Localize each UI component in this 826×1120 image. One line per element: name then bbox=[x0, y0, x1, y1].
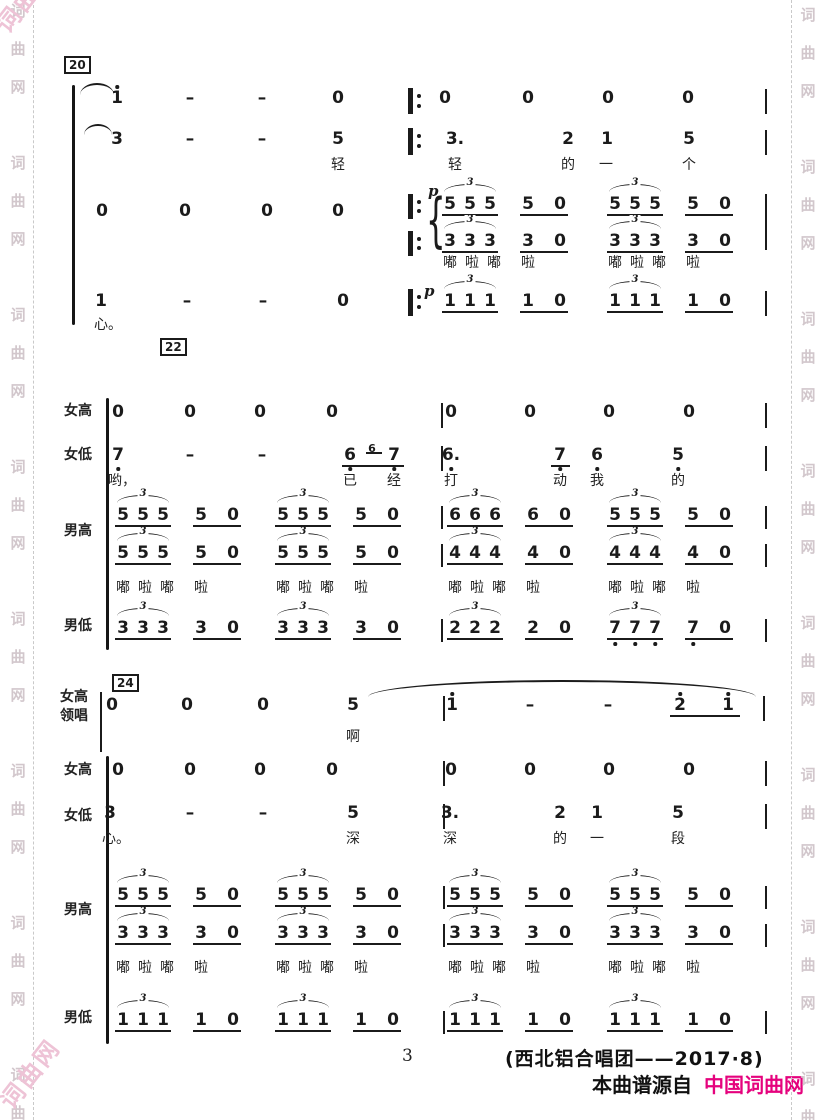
beam-line bbox=[685, 1030, 733, 1032]
scat-lyric: 啦 bbox=[686, 256, 700, 270]
beam-line bbox=[607, 251, 663, 253]
note: 5 bbox=[629, 196, 641, 213]
watermark-char: 词 bbox=[10, 308, 25, 323]
triplet-number: 3 bbox=[298, 994, 309, 1004]
system-bracket bbox=[72, 85, 75, 325]
watermark-char: 词 bbox=[10, 764, 25, 779]
rest-note: 0 bbox=[106, 697, 118, 714]
beam-line bbox=[115, 943, 171, 945]
note: 5 bbox=[332, 131, 344, 148]
note: 1 bbox=[446, 697, 458, 714]
note: 5 bbox=[489, 887, 501, 904]
lyric: 的 bbox=[553, 832, 567, 846]
triplet-bracket: 3 bbox=[277, 533, 329, 541]
octave-dot-below bbox=[633, 642, 637, 646]
beam-line bbox=[525, 1030, 573, 1032]
note: 1 bbox=[527, 1012, 539, 1029]
triplet-bracket: 3 bbox=[117, 913, 169, 921]
system-bracket bbox=[106, 756, 109, 1044]
note: 5 bbox=[195, 887, 207, 904]
note: 3 bbox=[687, 925, 699, 942]
watermark-char: 网 bbox=[10, 232, 25, 247]
barline bbox=[765, 130, 767, 155]
note: 5 bbox=[672, 447, 684, 464]
scat-lyric: 啦 bbox=[686, 581, 700, 595]
lyric: 段 bbox=[671, 832, 685, 846]
rest-note: 0 bbox=[387, 925, 399, 942]
rest-note: 0 bbox=[227, 887, 239, 904]
note: 1 bbox=[484, 293, 496, 310]
rest-note: 0 bbox=[227, 925, 239, 942]
note: – bbox=[259, 293, 268, 310]
triplet-number: 3 bbox=[470, 489, 481, 499]
note: 3 bbox=[277, 925, 289, 942]
triplet-number: 3 bbox=[138, 869, 149, 879]
watermark-char: 词 bbox=[800, 920, 815, 935]
rest-note: 0 bbox=[96, 203, 108, 220]
dynamic-marking: p bbox=[428, 184, 439, 199]
watermark-char: 网 bbox=[800, 996, 815, 1011]
note: 5 bbox=[469, 887, 481, 904]
note: – bbox=[186, 131, 195, 148]
octave-dot-below bbox=[613, 642, 617, 646]
watermark-char: 曲 bbox=[800, 198, 815, 213]
beam-line bbox=[193, 638, 241, 640]
rest-note: 0 bbox=[719, 545, 731, 562]
note: 5 bbox=[297, 545, 309, 562]
note: 5 bbox=[687, 507, 699, 524]
triplet-bracket: 3 bbox=[609, 533, 661, 541]
triplet-bracket: 3 bbox=[117, 608, 169, 616]
scat-lyric: 嘟 bbox=[276, 961, 290, 975]
lyric: 已 bbox=[343, 474, 357, 488]
rest-note: 0 bbox=[179, 203, 191, 220]
lyric: 心。 bbox=[94, 318, 122, 332]
rest-note: 0 bbox=[445, 404, 457, 421]
triplet-number: 3 bbox=[630, 489, 641, 499]
watermark-char: 曲 bbox=[800, 502, 815, 517]
beam-line bbox=[275, 1030, 331, 1032]
note: 5 bbox=[277, 545, 289, 562]
source-prefix: 本曲谱源自 bbox=[592, 1069, 692, 1098]
beam-line bbox=[353, 905, 401, 907]
triplet-number: 3 bbox=[138, 602, 149, 612]
voice-label: 男高 bbox=[64, 524, 92, 538]
note: 5 bbox=[195, 545, 207, 562]
watermark-char: 网 bbox=[10, 992, 25, 1007]
note: 1 bbox=[609, 293, 621, 310]
triplet-number: 3 bbox=[470, 527, 481, 537]
scat-lyric: 啦 bbox=[526, 961, 540, 975]
barline bbox=[765, 1011, 767, 1034]
note: 3 bbox=[687, 233, 699, 250]
note: 5 bbox=[137, 507, 149, 524]
rest-note: 0 bbox=[682, 90, 694, 107]
triplet-bracket: 3 bbox=[449, 875, 501, 883]
watermark-char: 词 bbox=[10, 460, 25, 475]
note: 3 bbox=[464, 233, 476, 250]
beam-line bbox=[193, 905, 241, 907]
lyric: 一 bbox=[590, 832, 604, 846]
lyric: 心。 bbox=[102, 832, 130, 846]
rest-note: 0 bbox=[337, 293, 349, 310]
note: 3 bbox=[522, 233, 534, 250]
beam-line bbox=[551, 465, 570, 467]
note: 1 bbox=[649, 1012, 661, 1029]
rest-note: 0 bbox=[719, 1012, 731, 1029]
note: 5 bbox=[609, 507, 621, 524]
note: – bbox=[186, 447, 195, 464]
rest-note: 0 bbox=[227, 1012, 239, 1029]
note: 3 bbox=[195, 925, 207, 942]
triplet-number: 3 bbox=[298, 907, 309, 917]
rest-note: 0 bbox=[719, 620, 731, 637]
scat-lyric: 啦 bbox=[138, 581, 152, 595]
note: 2 bbox=[527, 620, 539, 637]
note: 7 bbox=[388, 447, 400, 464]
beam-line bbox=[442, 251, 498, 253]
barline bbox=[443, 886, 445, 909]
note: 3 bbox=[355, 925, 367, 942]
voice-label: 男低 bbox=[64, 1011, 92, 1025]
note: 4 bbox=[449, 545, 461, 562]
beam-line bbox=[525, 905, 573, 907]
watermark-char: 网 bbox=[10, 384, 25, 399]
watermark-char: 曲 bbox=[10, 346, 25, 361]
scat-lyric: 啦 bbox=[298, 581, 312, 595]
triplet-number: 3 bbox=[630, 275, 641, 285]
note: 3 bbox=[629, 233, 641, 250]
note: 1 bbox=[469, 1012, 481, 1029]
scat-lyric: 嘟 bbox=[492, 961, 506, 975]
note: 3 bbox=[117, 925, 129, 942]
note: 6 bbox=[489, 507, 501, 524]
watermark-char: 网 bbox=[800, 844, 815, 859]
barline bbox=[443, 1011, 445, 1034]
octave-dot-above bbox=[115, 85, 119, 89]
watermark-char: 网 bbox=[10, 536, 25, 551]
octave-dot-below bbox=[676, 467, 680, 471]
watermark-char: 曲 bbox=[10, 954, 25, 969]
beam-line bbox=[366, 452, 382, 454]
note: 5 bbox=[649, 887, 661, 904]
octave-dot-below bbox=[392, 467, 396, 471]
beam-line bbox=[685, 311, 733, 313]
barline bbox=[443, 696, 445, 721]
rest-note: 0 bbox=[559, 887, 571, 904]
watermark-char: 词 bbox=[800, 160, 815, 175]
grand-staff-brace: { bbox=[426, 192, 446, 251]
note: 1 bbox=[489, 1012, 501, 1029]
note: 1 bbox=[449, 1012, 461, 1029]
triplet-bracket: 3 bbox=[117, 1000, 169, 1008]
repeat-sign bbox=[408, 88, 422, 114]
voice-label: 女高 bbox=[60, 690, 88, 704]
note: 5 bbox=[687, 196, 699, 213]
rest-note: 0 bbox=[683, 762, 695, 779]
note: – bbox=[258, 447, 267, 464]
note: 3 bbox=[444, 233, 456, 250]
rest-note: 0 bbox=[387, 545, 399, 562]
rest-note: 0 bbox=[602, 90, 614, 107]
note: 5 bbox=[157, 507, 169, 524]
note: 5 bbox=[484, 196, 496, 213]
watermark-char: 曲 bbox=[800, 806, 815, 821]
note: 3 bbox=[355, 620, 367, 637]
repeat-sign bbox=[408, 128, 422, 155]
triplet-bracket: 3 bbox=[449, 533, 501, 541]
watermark-char: 网 bbox=[10, 80, 25, 95]
lyric: 轻 bbox=[448, 158, 462, 172]
barline bbox=[765, 761, 767, 786]
slur-arc bbox=[368, 680, 756, 697]
lyric: 啊 bbox=[346, 730, 360, 744]
triplet-number: 3 bbox=[630, 869, 641, 879]
note: 3 bbox=[157, 925, 169, 942]
beam-line bbox=[685, 943, 733, 945]
watermark-char: 词 bbox=[800, 8, 815, 23]
note: 5 bbox=[157, 545, 169, 562]
note: 1 bbox=[137, 1012, 149, 1029]
triplet-bracket: 3 bbox=[444, 184, 496, 192]
note: 3 bbox=[104, 805, 116, 822]
watermark-char: 网 bbox=[800, 84, 815, 99]
repeat-dot bbox=[417, 144, 421, 148]
note: 3 bbox=[629, 925, 641, 942]
page-number: 3 bbox=[402, 1046, 413, 1066]
repeat-dot bbox=[417, 295, 421, 299]
note: 4 bbox=[609, 545, 621, 562]
note: 5 bbox=[609, 196, 621, 213]
scat-lyric: 嘟 bbox=[116, 961, 130, 975]
rest-note: 0 bbox=[227, 507, 239, 524]
note: 1 bbox=[157, 1012, 169, 1029]
beam-line bbox=[115, 638, 171, 640]
note: 5 bbox=[527, 887, 539, 904]
triplet-number: 3 bbox=[298, 527, 309, 537]
rest-note: 0 bbox=[387, 620, 399, 637]
note: 5 bbox=[117, 887, 129, 904]
system-bracket bbox=[106, 398, 109, 650]
watermark-char: 网 bbox=[800, 540, 815, 555]
rest-note: 0 bbox=[254, 762, 266, 779]
triplet-bracket: 3 bbox=[609, 875, 661, 883]
rest-note: 0 bbox=[559, 545, 571, 562]
watermark-char: 网 bbox=[10, 688, 25, 703]
scat-lyric: 嘟 bbox=[160, 581, 174, 595]
triplet-number: 3 bbox=[138, 527, 149, 537]
beam-line bbox=[193, 1030, 241, 1032]
note: 3 bbox=[469, 925, 481, 942]
note: – bbox=[183, 293, 192, 310]
note: 5 bbox=[649, 507, 661, 524]
note: 1 bbox=[601, 131, 613, 148]
note: 1 bbox=[317, 1012, 329, 1029]
triplet-number: 3 bbox=[630, 907, 641, 917]
lyric: 动 bbox=[553, 474, 567, 488]
watermark-dashed-line bbox=[33, 0, 34, 1120]
scat-lyric: 啦 bbox=[521, 256, 535, 270]
beam-line bbox=[353, 943, 401, 945]
note: 1 bbox=[95, 293, 107, 310]
note: 5 bbox=[317, 545, 329, 562]
octave-dot-below bbox=[653, 642, 657, 646]
beam-line bbox=[607, 638, 663, 640]
note: 5 bbox=[347, 805, 359, 822]
repeat-sign bbox=[408, 194, 422, 219]
lyric: 我 bbox=[590, 474, 604, 488]
triplet-number: 3 bbox=[465, 215, 476, 225]
scat-lyric: 嘟 bbox=[116, 581, 130, 595]
note: 1 bbox=[464, 293, 476, 310]
note: 1 bbox=[297, 1012, 309, 1029]
barline bbox=[443, 924, 445, 947]
note: 5 bbox=[522, 196, 534, 213]
note: 3. bbox=[441, 805, 459, 822]
barline bbox=[765, 403, 767, 428]
lyric: 打 bbox=[444, 474, 458, 488]
note: 5 bbox=[687, 887, 699, 904]
scat-lyric: 嘟 bbox=[448, 961, 462, 975]
triplet-bracket: 3 bbox=[444, 281, 496, 289]
note: 5 bbox=[444, 196, 456, 213]
rest-note: 0 bbox=[387, 507, 399, 524]
scat-lyric: 嘟 bbox=[652, 961, 666, 975]
note: 7 bbox=[554, 447, 566, 464]
barline bbox=[765, 619, 767, 642]
note: 5 bbox=[629, 507, 641, 524]
scat-lyric: 啦 bbox=[194, 961, 208, 975]
barline bbox=[765, 446, 767, 471]
triplet-bracket: 3 bbox=[117, 533, 169, 541]
beam-line bbox=[685, 214, 733, 216]
note: 5 bbox=[355, 887, 367, 904]
note: 5 bbox=[347, 697, 359, 714]
scat-lyric: 嘟 bbox=[608, 256, 622, 270]
triplet-bracket: 3 bbox=[449, 495, 501, 503]
voice-label: 女低 bbox=[64, 448, 92, 462]
rest-note: 0 bbox=[181, 697, 193, 714]
scat-lyric: 嘟 bbox=[448, 581, 462, 595]
repeat-dot bbox=[417, 94, 421, 98]
scat-lyric: 啦 bbox=[630, 256, 644, 270]
watermark-char: 曲 bbox=[800, 350, 815, 365]
triplet-number: 3 bbox=[630, 602, 641, 612]
beam-line bbox=[115, 563, 171, 565]
beam-line bbox=[353, 525, 401, 527]
octave-dot-below bbox=[595, 467, 599, 471]
note: 1 bbox=[591, 805, 603, 822]
watermark-char: 词 bbox=[800, 1072, 815, 1087]
triplet-bracket: 3 bbox=[444, 221, 496, 229]
triplet-number: 3 bbox=[630, 215, 641, 225]
note: 5 bbox=[355, 507, 367, 524]
note: 5 bbox=[683, 131, 695, 148]
note: 3 bbox=[111, 131, 123, 148]
note: 3 bbox=[137, 925, 149, 942]
lyric: 深 bbox=[443, 832, 457, 846]
triplet-number: 3 bbox=[298, 869, 309, 879]
beam-line bbox=[353, 563, 401, 565]
rest-note: 0 bbox=[554, 196, 566, 213]
note: 1 bbox=[444, 293, 456, 310]
watermark-char: 词 bbox=[800, 768, 815, 783]
triplet-bracket: 3 bbox=[277, 875, 329, 883]
rest-note: 0 bbox=[261, 203, 273, 220]
lyric: 经 bbox=[387, 474, 401, 488]
note: 5 bbox=[277, 887, 289, 904]
triplet-bracket: 3 bbox=[449, 913, 501, 921]
scat-lyric: 嘟 bbox=[652, 581, 666, 595]
barline bbox=[765, 89, 767, 114]
note: 1 bbox=[195, 1012, 207, 1029]
note: 3 bbox=[117, 620, 129, 637]
scat-lyric: 嘟 bbox=[320, 961, 334, 975]
repeat-dot bbox=[417, 237, 421, 241]
triplet-bracket: 3 bbox=[277, 608, 329, 616]
triplet-bracket: 3 bbox=[609, 184, 661, 192]
beam-line bbox=[525, 525, 573, 527]
repeat-dot bbox=[417, 134, 421, 138]
rest-note: 0 bbox=[184, 762, 196, 779]
note: 7 bbox=[629, 620, 641, 637]
beam-line bbox=[525, 638, 573, 640]
note: 2 bbox=[489, 620, 501, 637]
note: 1 bbox=[522, 293, 534, 310]
repeat-dot bbox=[417, 209, 421, 213]
rest-note: 0 bbox=[387, 1012, 399, 1029]
voice-label: 男高 bbox=[64, 903, 92, 917]
triplet-bracket: 3 bbox=[117, 495, 169, 503]
note: 1 bbox=[687, 1012, 699, 1029]
beam-line bbox=[607, 943, 663, 945]
measure-number-box: 22 bbox=[160, 338, 187, 356]
watermark-char: 词 bbox=[800, 616, 815, 631]
octave-dot-below bbox=[116, 467, 120, 471]
rest-note: 0 bbox=[719, 925, 731, 942]
lyric: 一 bbox=[599, 158, 613, 172]
beam-line bbox=[193, 525, 241, 527]
note: – bbox=[259, 805, 268, 822]
note: 3 bbox=[195, 620, 207, 637]
rest-note: 0 bbox=[254, 404, 266, 421]
rest-note: 0 bbox=[719, 233, 731, 250]
note: 5 bbox=[464, 196, 476, 213]
rest-note: 0 bbox=[332, 90, 344, 107]
source-site-link[interactable]: 中国词曲网 bbox=[704, 1069, 804, 1098]
barline bbox=[765, 924, 767, 947]
triplet-number: 3 bbox=[138, 994, 149, 1004]
watermark-char: 网 bbox=[800, 388, 815, 403]
rest-note: 0 bbox=[326, 404, 338, 421]
watermark-char: 曲 bbox=[800, 46, 815, 61]
watermark-char: 词 bbox=[800, 312, 815, 327]
beam-line bbox=[685, 905, 733, 907]
note: 1 bbox=[277, 1012, 289, 1029]
note: 5 bbox=[137, 545, 149, 562]
note: 3 bbox=[317, 620, 329, 637]
corner-watermark: 词曲网 bbox=[0, 0, 61, 37]
scat-lyric: 啦 bbox=[194, 581, 208, 595]
voice-label: 男低 bbox=[64, 619, 92, 633]
beam-line bbox=[525, 943, 573, 945]
rest-note: 0 bbox=[445, 762, 457, 779]
rest-note: 0 bbox=[719, 196, 731, 213]
note: 3. bbox=[446, 131, 464, 148]
scat-lyric: 嘟 bbox=[487, 256, 501, 270]
octave-dot-below bbox=[348, 467, 352, 471]
watermark-char: 曲 bbox=[10, 650, 25, 665]
